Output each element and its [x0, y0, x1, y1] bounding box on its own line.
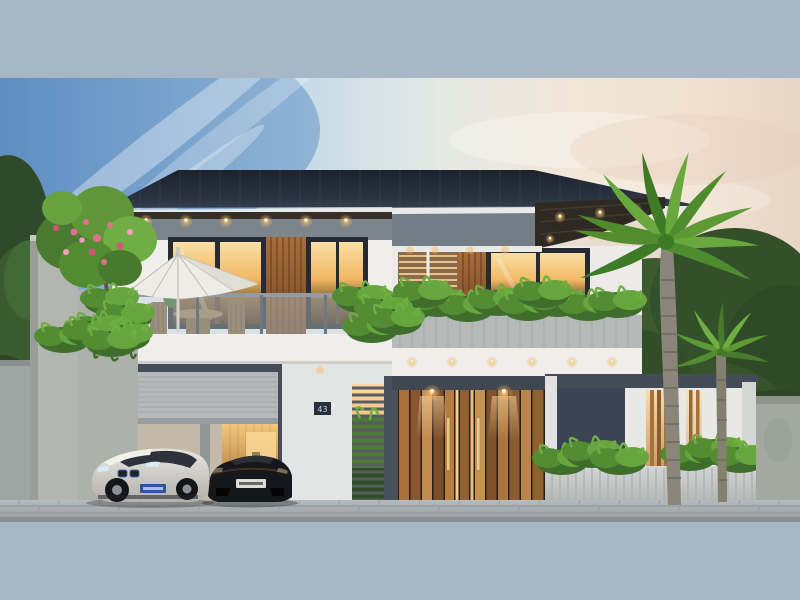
wooden-gate — [392, 376, 558, 503]
gate-post — [384, 376, 398, 503]
balcony-slab — [112, 334, 392, 364]
planter-box — [392, 315, 642, 350]
villa-render-image: 43 — [0, 0, 800, 600]
gate-handle — [477, 418, 480, 470]
fence — [532, 374, 769, 502]
letterbox-bottom — [0, 522, 800, 600]
porch-soffit — [392, 348, 642, 376]
louver-screen — [352, 384, 384, 502]
garage-shutter — [138, 372, 278, 424]
house-number-text: 43 — [317, 405, 327, 414]
villa-render-canvas: 43 — [0, 0, 800, 600]
letterbox-top — [0, 0, 800, 78]
gate-top-rail — [392, 376, 558, 390]
house-number-plaque: 43 — [314, 402, 331, 415]
gate-handle — [447, 418, 450, 470]
boundary-wall-right — [756, 396, 800, 502]
